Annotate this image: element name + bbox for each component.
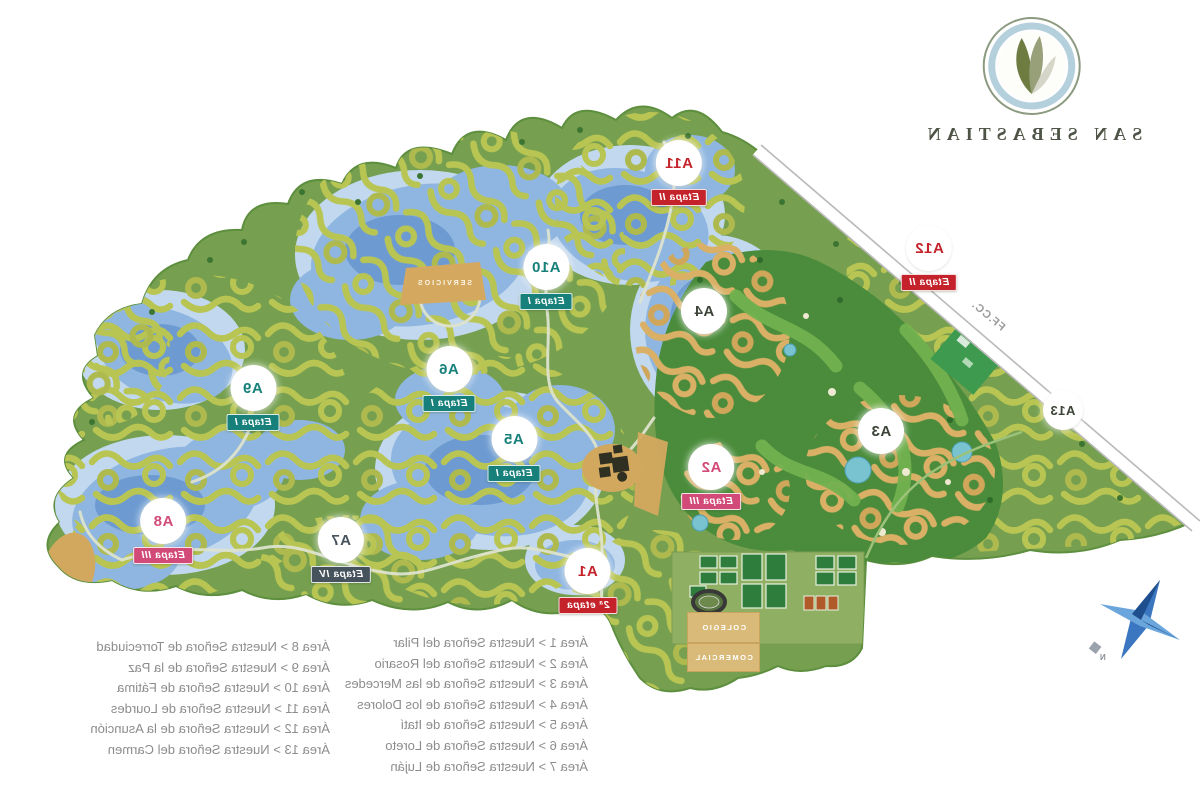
area-marker-a1: A1 2ª etapa <box>559 548 618 614</box>
area-circle: A4 <box>681 288 727 334</box>
area-circle: A1 <box>565 548 611 594</box>
area-circle: A13 <box>1043 390 1083 430</box>
area-marker-a10: A10 Etapa I <box>520 244 573 310</box>
area-circle: A5 <box>491 416 537 462</box>
area-stage-badge: Etapa II <box>901 274 957 291</box>
area-marker-a11: A11 Etapa II <box>651 140 707 206</box>
masterplan-map: SAN SEBASTIAN A11 Etapa II A10 Etapa I A… <box>0 0 1200 787</box>
legend-item: Área 3 > Nuestra Señora de las Mercedes <box>318 674 588 695</box>
legend-item: Área 13 > Nuestra Señora del Carmen <box>22 740 330 761</box>
compass-north-label: N <box>1100 653 1106 662</box>
brand-logo: SAN SEBASTIAN <box>922 16 1143 145</box>
legend-item: Área 7 > Nuestra Señora de Luján <box>318 757 588 778</box>
area-circle: A2 <box>688 444 734 490</box>
area-marker-a5: A5 Etapa I <box>488 416 541 482</box>
area-circle: A8 <box>140 498 186 544</box>
area-circle: A3 <box>858 408 904 454</box>
area-marker-a8: A8 Etapa III <box>133 498 193 564</box>
legend-item: Área 2 > Nuestra Señora del Rosario <box>318 654 588 675</box>
legend-item: Área 11 > Nuestra Señora de Lourdes <box>22 699 330 720</box>
services-block: SERVICIOS <box>405 274 483 292</box>
area-marker-a12: A12 Etapa II <box>901 225 957 291</box>
area-circle: A9 <box>230 365 276 411</box>
area-circle: A11 <box>656 140 702 186</box>
area-marker-a3: A3 <box>858 408 904 454</box>
area-marker-a2: A2 Etapa III <box>681 444 741 510</box>
area-stage-badge: Etapa I <box>488 465 541 482</box>
compass-rose <box>1089 580 1180 659</box>
brand-title: SAN SEBASTIAN <box>922 124 1143 145</box>
area-stage-badge: Etapa IV <box>311 566 371 583</box>
legend-item: Área 12 > Nuestra Señora de la Asunción <box>22 719 330 740</box>
area-marker-a13: A13 <box>1043 390 1083 430</box>
area-stage-badge: Etapa I <box>520 293 573 310</box>
area-marker-a7: A7 Etapa IV <box>311 517 371 583</box>
legend-item: Área 8 > Nuestra Señora de Torreciudad <box>22 637 330 658</box>
legend-item: Área 4 > Nuestra Señora de los Dolores <box>318 695 588 716</box>
legend-areas-8-13: Área 8 > Nuestra Señora de Torreciudad Á… <box>22 637 330 761</box>
legend-areas-1-7: Área 1 > Nuestra Señora del Pilar Área 2… <box>318 633 588 777</box>
legend-item: Área 1 > Nuestra Señora del Pilar <box>318 633 588 654</box>
area-marker-a6: A6 Etapa I <box>423 346 476 412</box>
area-stage-badge: 2ª etapa <box>559 597 618 614</box>
legend-item: Área 6 > Nuestra Señora de Loreto <box>318 736 588 757</box>
school-block: COLEGIO <box>687 612 760 643</box>
legend-item: Área 9 > Nuestra Señora de la Paz <box>22 658 330 679</box>
area-stage-badge: Etapa II <box>651 189 707 206</box>
legend-item: Área 5 > Nuestra Señora de Itatí <box>318 715 588 736</box>
area-circle: A6 <box>426 346 472 392</box>
area-stage-badge: Etapa I <box>227 414 280 431</box>
area-circle: A12 <box>906 225 952 271</box>
area-marker-a4: A4 <box>681 288 727 334</box>
area-stage-badge: Etapa I <box>423 395 476 412</box>
area-circle: A10 <box>523 244 569 290</box>
area-circle: A7 <box>318 517 364 563</box>
area-stage-badge: Etapa III <box>681 493 741 510</box>
area-stage-badge: Etapa III <box>133 547 193 564</box>
commercial-block: COMERCIAL <box>687 643 760 672</box>
area-marker-a9: A9 Etapa I <box>227 365 280 431</box>
legend-item: Área 10 > Nuestra Señora de Fátima <box>22 678 330 699</box>
logo-emblem-icon <box>982 16 1082 116</box>
